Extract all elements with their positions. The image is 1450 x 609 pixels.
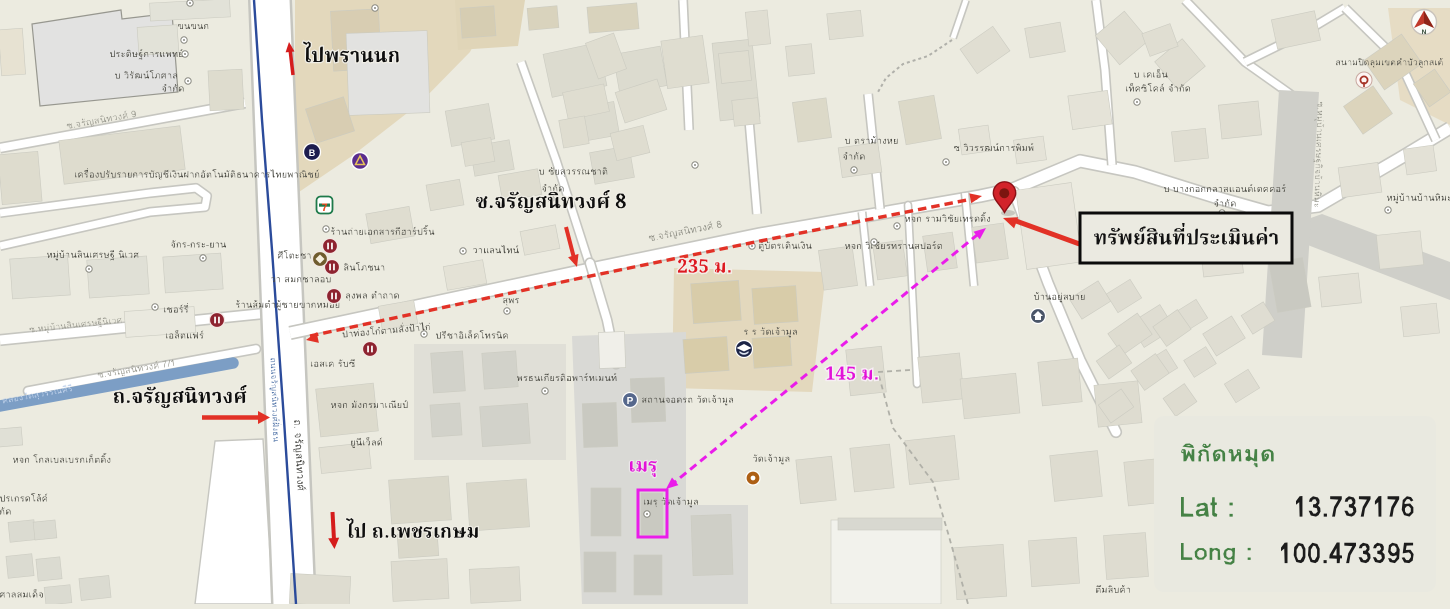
- svg-text:B: B: [309, 148, 316, 158]
- svg-text:7: 7: [321, 202, 327, 214]
- svg-text:P: P: [627, 396, 634, 407]
- svg-text:N: N: [1422, 29, 1427, 36]
